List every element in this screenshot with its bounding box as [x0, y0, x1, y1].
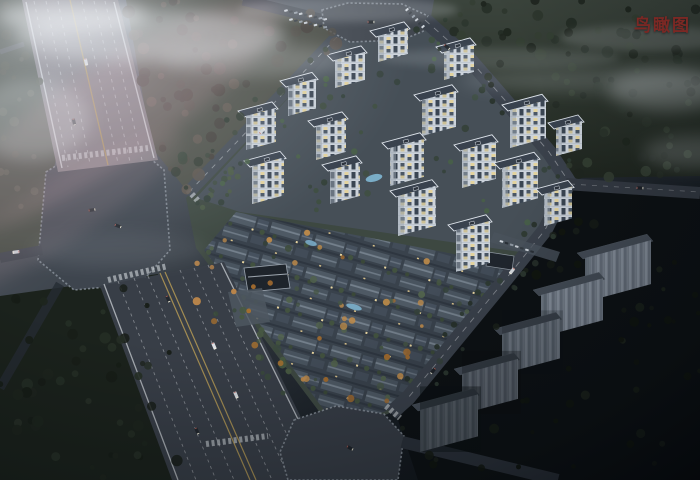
view-title: 鸟瞰图: [634, 11, 691, 36]
vignette: [0, 0, 700, 480]
aerial-render-canvas: [0, 0, 700, 480]
birdseye-rendering: 鸟瞰图: [0, 0, 700, 480]
